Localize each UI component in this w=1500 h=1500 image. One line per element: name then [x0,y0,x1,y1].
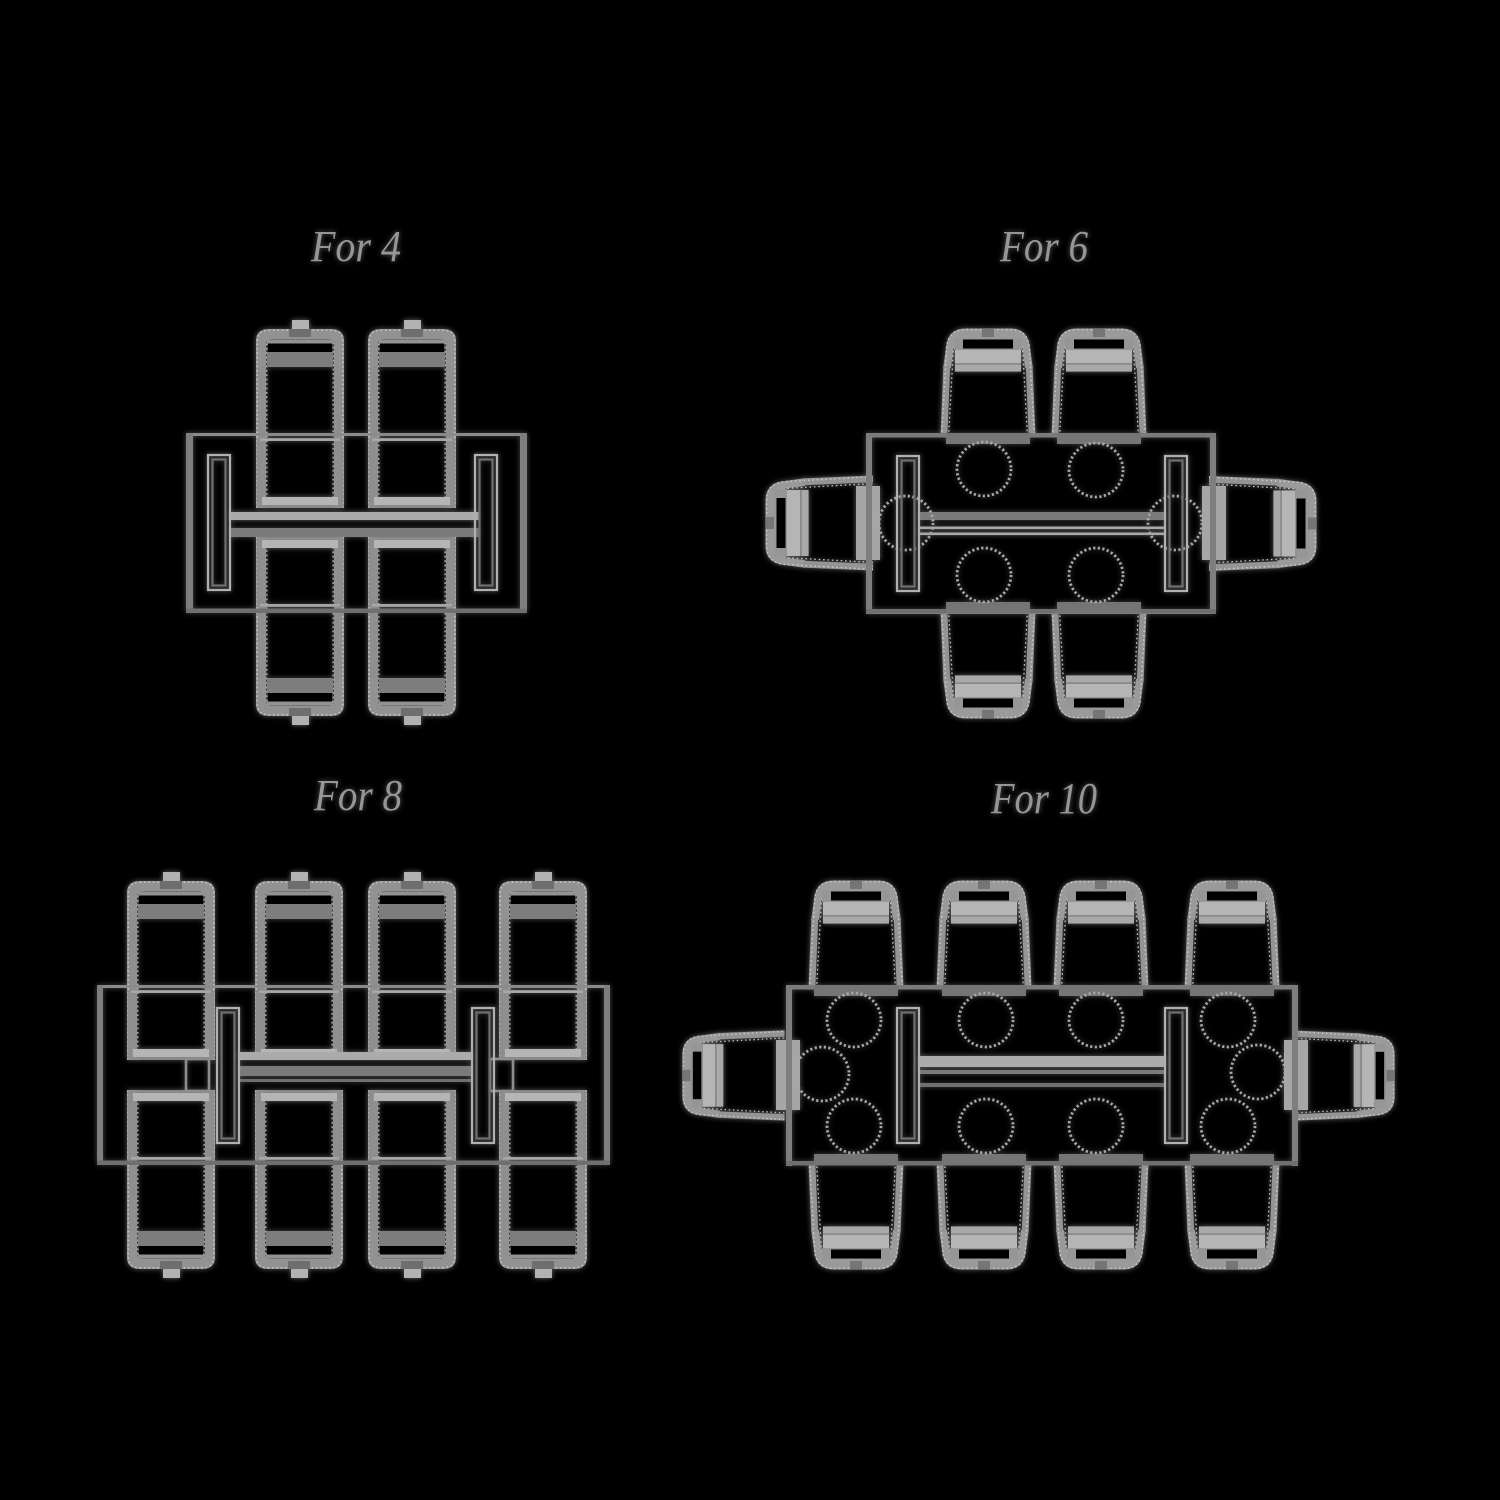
svg-text:For 4: For 4 [310,222,401,271]
svg-text:For 10: For 10 [990,774,1097,823]
svg-text:For 8: For 8 [313,771,402,820]
svg-text:For 6: For 6 [999,222,1088,271]
